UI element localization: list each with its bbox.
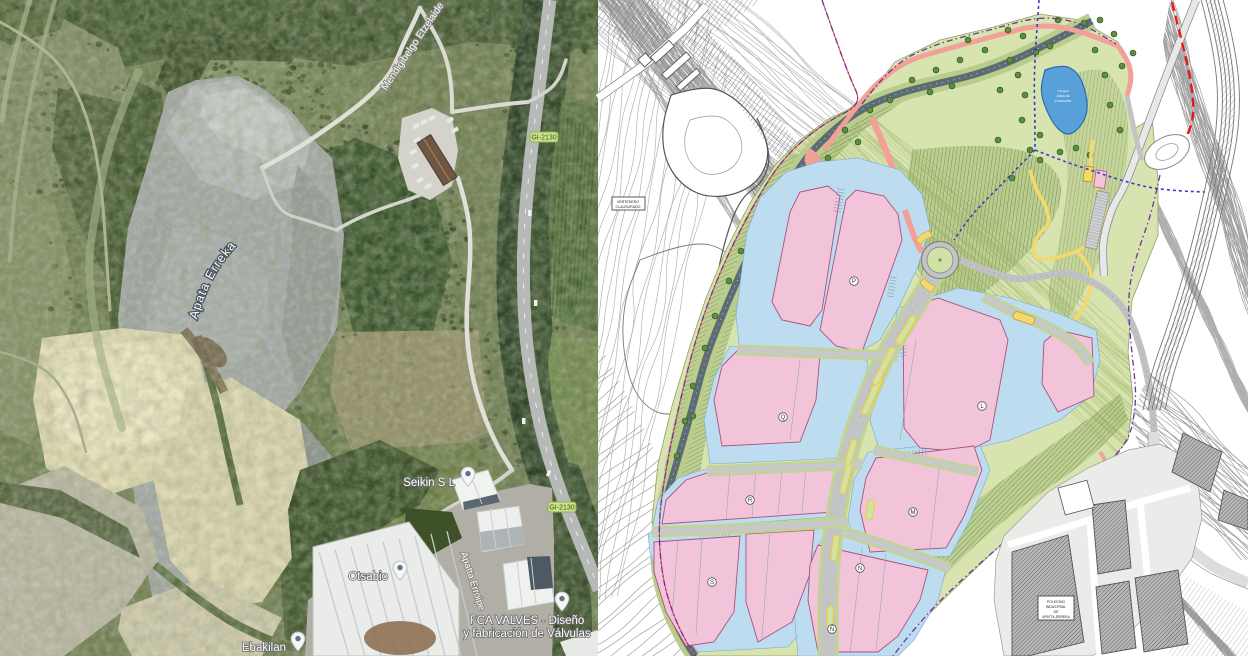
svg-text:VERTEDERO: VERTEDERO: [617, 200, 640, 204]
svg-text:Ñ: Ñ: [830, 626, 834, 633]
svg-text:GI-2130: GI-2130: [549, 505, 574, 512]
svg-text:Q: Q: [781, 415, 786, 421]
svg-text:INDUSTRIAL: INDUSTRIAL: [1046, 605, 1066, 609]
svg-text:ÁREA DE: ÁREA DE: [1056, 94, 1069, 98]
svg-text:CLAUSURADO: CLAUSURADO: [616, 205, 641, 209]
svg-text:P: P: [852, 279, 856, 285]
svg-text:R: R: [748, 498, 753, 504]
svg-text:APATTA-ERREKA: APATTA-ERREKA: [1042, 615, 1070, 619]
svg-text:POLIGONO: POLIGONO: [1047, 600, 1065, 604]
svg-text:N: N: [858, 566, 862, 572]
svg-text:Seikin S L: Seikin S L: [403, 477, 455, 489]
svg-text:FCA VALVES - Diseño: FCA VALVES - Diseño: [470, 615, 585, 627]
svg-text:Txingudi: Txingudi: [1057, 89, 1069, 93]
svg-text:Ebakilan: Ebakilan: [242, 642, 286, 654]
svg-text:y fabricación de Válvulas: y fabricación de Válvulas: [463, 628, 590, 640]
svg-text:Otsabio: Otsabio: [348, 571, 388, 583]
svg-text:FUNDICIÓN: FUNDICIÓN: [1055, 98, 1072, 103]
svg-text:S: S: [710, 580, 714, 586]
svg-text:DE: DE: [1054, 610, 1059, 614]
svg-text:GI-2130: GI-2130: [531, 135, 556, 142]
svg-text:M: M: [911, 510, 916, 516]
